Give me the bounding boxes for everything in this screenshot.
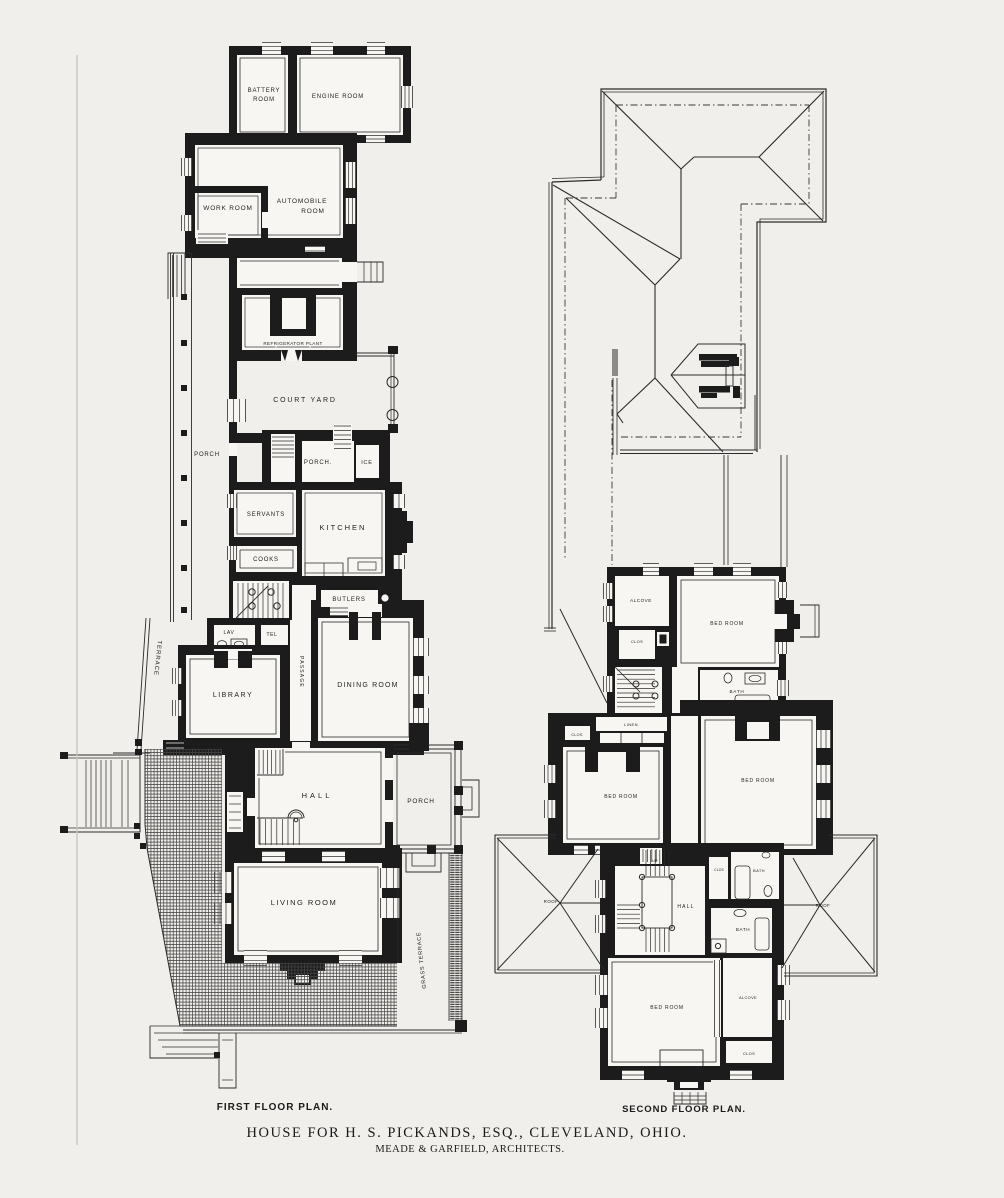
svg-text:PORCH: PORCH (407, 798, 434, 805)
svg-text:KITCHEN: KITCHEN (320, 523, 367, 532)
svg-text:CLOS: CLOS (714, 868, 724, 872)
svg-text:BED ROOM: BED ROOM (741, 778, 775, 784)
svg-text:FIRST FLOOR PLAN.: FIRST FLOOR PLAN. (217, 1102, 333, 1113)
svg-text:BATH: BATH (729, 689, 744, 694)
svg-text:LAV: LAV (224, 630, 235, 636)
svg-text:ICE: ICE (361, 460, 373, 466)
svg-text:LIVING ROOM: LIVING ROOM (271, 898, 338, 907)
svg-text:ALCOVE: ALCOVE (739, 995, 757, 1000)
svg-text:BATTERY: BATTERY (248, 88, 281, 94)
svg-text:BATH: BATH (736, 927, 750, 932)
svg-text:BUTLERS: BUTLERS (332, 597, 365, 603)
svg-text:ROOF: ROOF (544, 899, 559, 904)
svg-text:ROOF: ROOF (816, 903, 831, 908)
svg-text:MEADE & GARFIELD, ARCHITECTS.: MEADE & GARFIELD, ARCHITECTS. (375, 1144, 564, 1155)
svg-text:LINEN: LINEN (624, 722, 638, 727)
svg-text:ROOM: ROOM (253, 97, 275, 103)
svg-text:PORCH: PORCH (194, 452, 220, 458)
svg-text:BED ROOM: BED ROOM (710, 621, 744, 627)
svg-text:HALL: HALL (302, 791, 333, 800)
svg-text:PORCH.: PORCH. (304, 460, 332, 466)
svg-text:BED ROOM: BED ROOM (650, 1005, 684, 1011)
svg-text:TEL: TEL (267, 632, 278, 638)
svg-text:SERVANTS: SERVANTS (247, 512, 285, 518)
svg-text:BATH: BATH (753, 868, 765, 873)
svg-text:AUTOMOBILE: AUTOMOBILE (277, 198, 328, 205)
svg-text:COOKS: COOKS (253, 557, 279, 563)
svg-text:CLOS: CLOS (631, 639, 643, 644)
svg-text:COURT YARD: COURT YARD (273, 397, 336, 404)
svg-text:CLOS: CLOS (571, 733, 582, 737)
svg-text:HALL: HALL (677, 904, 694, 910)
svg-text:REFRIGERATOR PLANT: REFRIGERATOR PLANT (263, 341, 322, 346)
svg-text:LIBRARY: LIBRARY (213, 692, 253, 699)
svg-text:PASSAGE: PASSAGE (298, 656, 304, 688)
svg-text:HOUSE FOR H. S. PICKANDS, E: HOUSE FOR H. S. PICKANDS, ESQ., CLEVELAN… (247, 1125, 688, 1141)
svg-text:DINING ROOM: DINING ROOM (337, 682, 398, 689)
svg-text:ALCOVE: ALCOVE (630, 598, 652, 603)
svg-text:WORK ROOM: WORK ROOM (203, 205, 252, 212)
svg-text:SECOND FLOOR PLAN.: SECOND FLOOR PLAN. (622, 1104, 746, 1115)
svg-text:ROOM: ROOM (301, 208, 324, 215)
svg-text:CLOS: CLOS (743, 1051, 755, 1056)
svg-text:ENGINE ROOM: ENGINE ROOM (312, 94, 364, 100)
svg-text:BED ROOM: BED ROOM (604, 794, 638, 800)
